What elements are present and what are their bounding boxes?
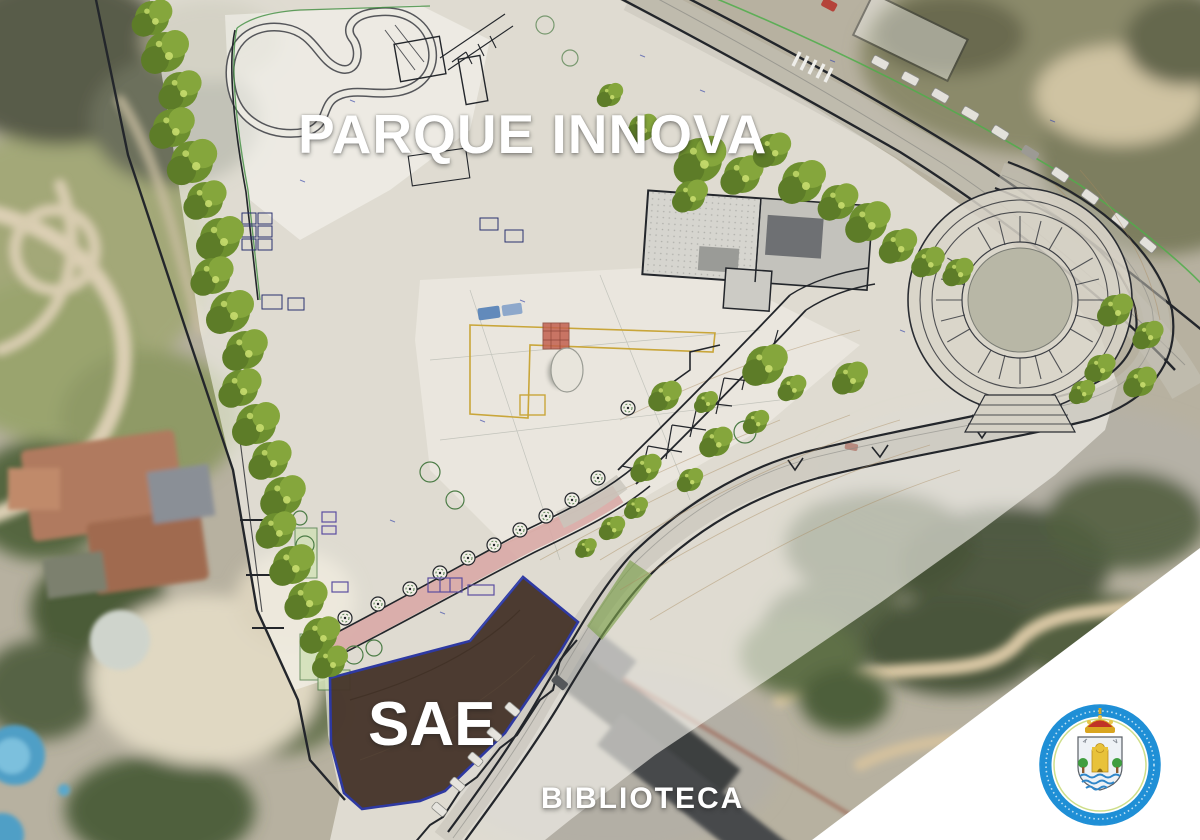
park-title-label: PARQUE INNOVA xyxy=(298,107,767,162)
sae-plot-label: SAE xyxy=(368,694,495,756)
library-label: BIBLIOTECA xyxy=(541,784,744,814)
site-plan-map: PARQUE INNOVA SAE BIBLIOTECA xyxy=(0,0,1200,840)
shield xyxy=(1078,737,1122,790)
red-square-court xyxy=(543,323,569,349)
municipal-crest-logo xyxy=(1040,705,1160,825)
